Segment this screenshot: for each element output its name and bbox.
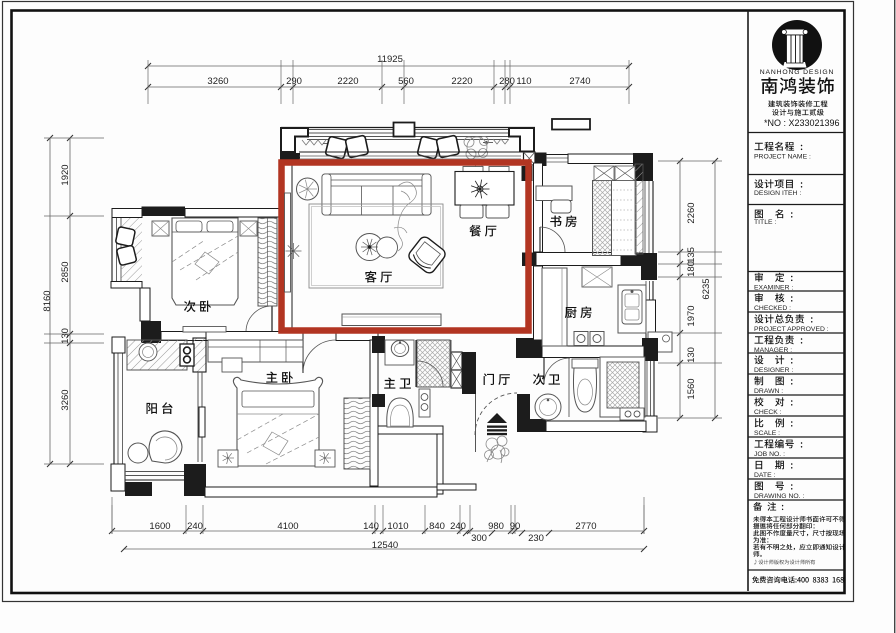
svg-text:2850: 2850 (60, 261, 71, 282)
svg-text:11925: 11925 (377, 54, 403, 65)
svg-text:4100: 4100 (277, 521, 298, 532)
svg-text:DESIGN ITEH :: DESIGN ITEH : (754, 190, 801, 197)
svg-text:300: 300 (471, 533, 487, 544)
svg-text:12540: 12540 (372, 540, 398, 551)
svg-text:1970: 1970 (686, 305, 697, 326)
svg-text:130: 130 (60, 328, 71, 344)
svg-text:1600: 1600 (149, 521, 170, 532)
svg-text:CHECKED :: CHECKED : (754, 305, 791, 312)
svg-text:130: 130 (686, 347, 697, 363)
svg-text:240: 240 (187, 521, 203, 532)
svg-text:NANHONG DESIGN: NANHONG DESIGN (760, 69, 835, 76)
svg-text:PROJECT NAME :: PROJECT NAME : (754, 154, 811, 161)
svg-text:2220: 2220 (451, 76, 472, 87)
svg-text:230: 230 (528, 533, 544, 544)
svg-text:DRAWN :: DRAWN : (754, 388, 783, 395)
svg-text:140: 140 (363, 521, 379, 532)
svg-text:135: 135 (686, 247, 697, 263)
svg-text:1920: 1920 (60, 164, 71, 185)
svg-text:TITLE :: TITLE : (754, 219, 776, 226)
svg-text:1010: 1010 (387, 521, 408, 532)
svg-text:SCALE :: SCALE : (754, 430, 780, 437)
svg-text:1560: 1560 (686, 378, 697, 399)
svg-text:2770: 2770 (575, 521, 596, 532)
svg-text:2740: 2740 (569, 76, 590, 87)
svg-text:DRAWING NO. :: DRAWING NO. : (754, 493, 804, 500)
svg-text:2220: 2220 (337, 76, 358, 87)
svg-text:280: 280 (499, 76, 515, 87)
svg-text:3260: 3260 (207, 76, 228, 87)
svg-text:DESIGNER :: DESIGNER : (754, 367, 793, 374)
svg-text:2260: 2260 (686, 202, 697, 223)
svg-text:*NO : X233021396: *NO : X233021396 (764, 118, 840, 128)
svg-text:JOB NO. :: JOB NO. : (754, 451, 785, 458)
svg-text:180: 180 (686, 261, 697, 277)
svg-text:290: 290 (286, 76, 302, 87)
svg-text:PROJECT APPROVED :: PROJECT APPROVED : (754, 326, 829, 333)
svg-text:EXAMINER :: EXAMINER : (754, 285, 793, 292)
svg-text:840: 840 (429, 521, 445, 532)
svg-text:980: 980 (488, 521, 504, 532)
svg-text:90: 90 (510, 521, 521, 532)
svg-text:DATE :: DATE : (754, 472, 776, 479)
svg-text:3260: 3260 (60, 389, 71, 410)
svg-text:CHECK :: CHECK : (754, 409, 782, 416)
svg-text:560: 560 (398, 76, 414, 87)
svg-text:240: 240 (450, 521, 466, 532)
svg-text:MANAGER :: MANAGER : (754, 347, 792, 354)
svg-text:6235: 6235 (701, 278, 712, 299)
svg-text:110: 110 (516, 76, 531, 87)
svg-text:8160: 8160 (42, 290, 53, 311)
